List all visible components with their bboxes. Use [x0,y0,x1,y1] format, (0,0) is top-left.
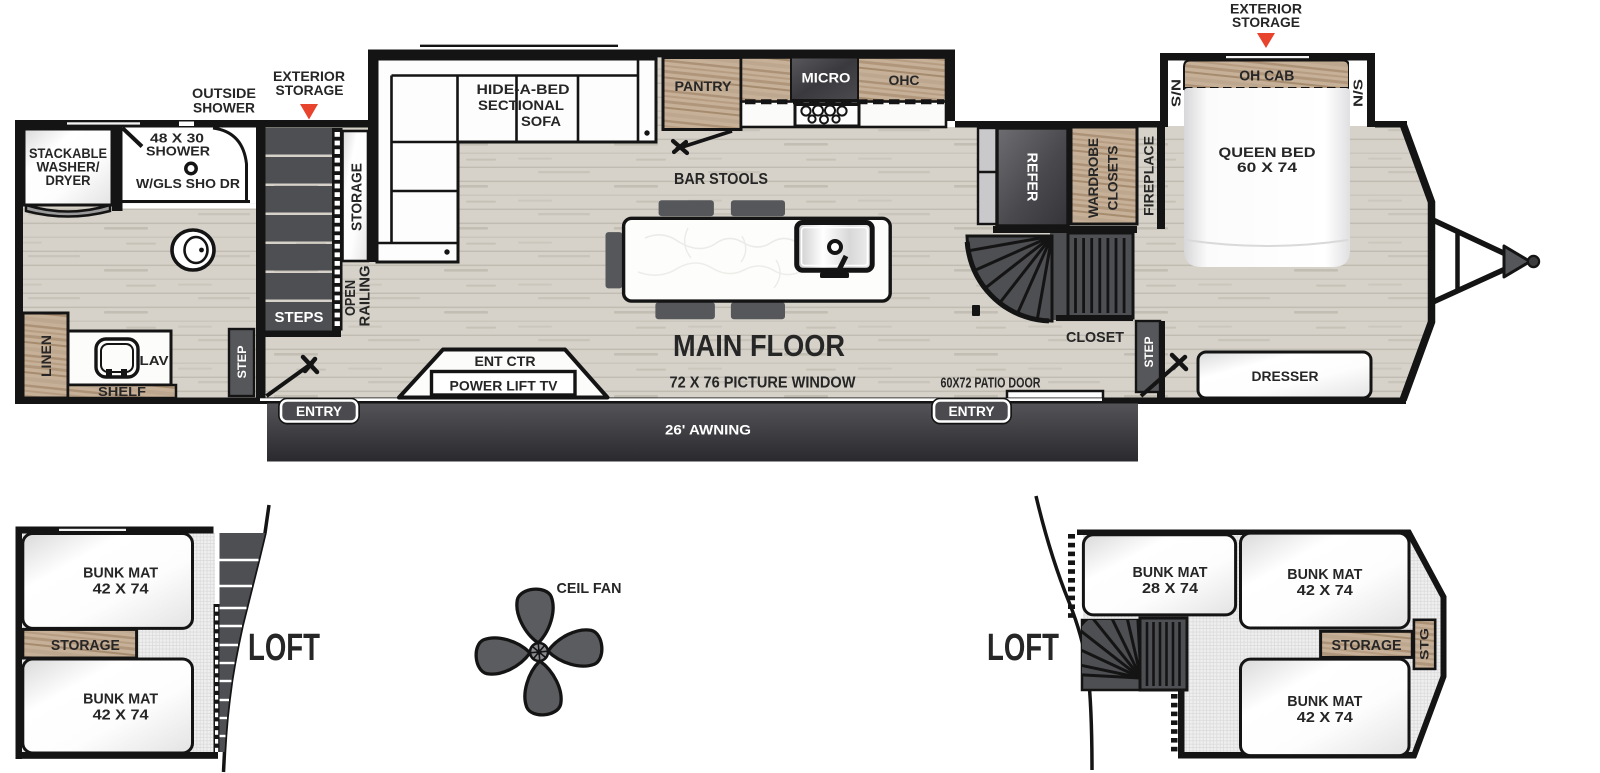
svg-text:60 X 74: 60 X 74 [1237,159,1297,175]
svg-text:LOFT: LOFT [248,627,320,669]
svg-text:DRYER: DRYER [46,172,91,188]
svg-text:LOFT: LOFT [987,627,1059,669]
svg-text:N/S: N/S [1169,79,1183,107]
svg-text:CLOSETS: CLOSETS [1105,146,1120,211]
svg-text:42 X 74: 42 X 74 [93,708,150,724]
svg-text:STEP: STEP [1142,337,1156,368]
svg-text:BAR STOOLS: BAR STOOLS [674,171,768,188]
svg-text:RAILING: RAILING [358,266,374,327]
svg-text:W/GLS SHO DR: W/GLS SHO DR [136,176,240,191]
svg-text:BUNK MAT: BUNK MAT [83,566,158,582]
svg-text:SHELF: SHELF [98,384,146,399]
svg-text:OH CAB: OH CAB [1239,69,1294,85]
svg-text:BUNK MAT: BUNK MAT [1287,567,1362,583]
svg-text:CEIL FAN: CEIL FAN [557,580,622,597]
svg-text:ENTRY: ENTRY [296,404,342,419]
svg-text:CLOSET: CLOSET [1066,330,1124,346]
svg-text:LAV: LAV [140,353,169,368]
svg-text:REFER: REFER [1024,153,1041,202]
svg-text:STORAGE: STORAGE [276,82,344,98]
svg-text:STORAGE: STORAGE [1332,638,1402,654]
svg-text:QUEEN BED: QUEEN BED [1219,144,1316,160]
svg-text:26' AWNING: 26' AWNING [665,422,751,438]
svg-text:42 X 74: 42 X 74 [1297,583,1354,599]
svg-text:STORAGE: STORAGE [1232,14,1300,30]
svg-text:28 X 74: 28 X 74 [1142,581,1199,597]
svg-text:STORAGE: STORAGE [350,163,366,231]
svg-text:OHC: OHC [889,72,920,88]
svg-text:LINEN: LINEN [39,335,54,377]
svg-text:SHOWER: SHOWER [193,100,255,116]
svg-text:42 X 74: 42 X 74 [1297,710,1354,726]
svg-text:SHOWER: SHOWER [146,144,211,159]
svg-text:BUNK MAT: BUNK MAT [1287,694,1362,710]
svg-text:N/S: N/S [1352,79,1366,107]
svg-text:STG: STG [1420,628,1432,660]
svg-text:SECTIONAL: SECTIONAL [478,97,564,113]
svg-text:72 X 76 PICTURE WINDOW: 72 X 76 PICTURE WINDOW [670,375,856,392]
svg-text:DRESSER: DRESSER [1252,369,1319,384]
svg-text:STORAGE: STORAGE [51,638,120,654]
svg-text:42 X 74: 42 X 74 [93,582,150,598]
svg-text:60X72 PATIO DOOR: 60X72 PATIO DOOR [941,376,1041,392]
svg-text:SOFA: SOFA [521,113,561,129]
svg-text:STEP: STEP [235,346,249,379]
svg-text:BUNK MAT: BUNK MAT [83,692,158,708]
svg-text:BUNK MAT: BUNK MAT [1133,565,1208,581]
svg-text:STEPS: STEPS [275,310,324,326]
svg-text:ENT CTR: ENT CTR [475,353,536,369]
svg-text:MAIN FLOOR: MAIN FLOOR [673,328,845,363]
svg-text:WARDROBE: WARDROBE [1086,138,1101,218]
svg-text:POWER LIFT TV: POWER LIFT TV [450,378,559,394]
svg-text:FIREPLACE: FIREPLACE [1141,136,1157,216]
svg-text:MICRO: MICRO [802,70,851,86]
svg-text:PANTRY: PANTRY [675,79,732,94]
svg-text:ENTRY: ENTRY [949,404,995,419]
svg-text:HIDE-A-BED: HIDE-A-BED [477,81,570,97]
